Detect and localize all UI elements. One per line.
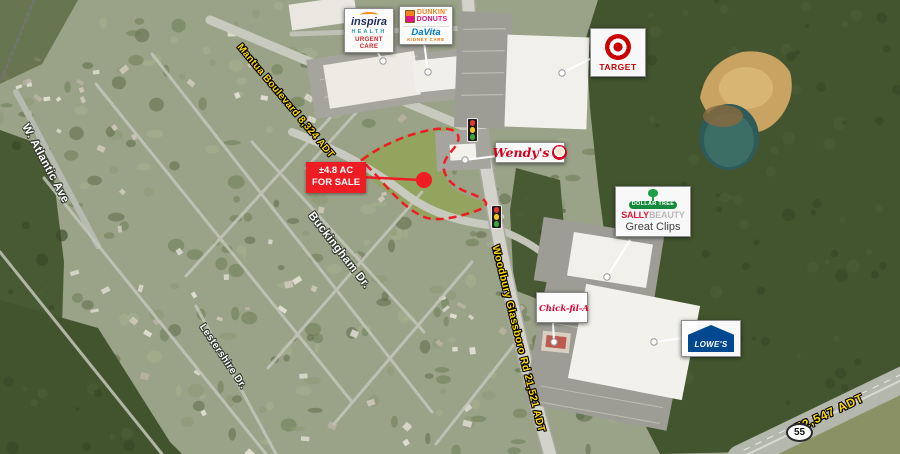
- aerial-imagery: [0, 0, 900, 454]
- dunkin-cup-icon: [405, 10, 415, 23]
- target-bullseye-icon: [605, 34, 631, 60]
- lowes-logo: LOWE'S: [694, 341, 727, 349]
- route-55-shield: 55: [786, 423, 813, 442]
- target-card: TARGET: [590, 28, 646, 77]
- dunkin-davita-card: DUNKIN' DONUTS DaVita KIDNEY CARE: [399, 6, 453, 45]
- lowes-house-shape: LOWE'S: [688, 325, 734, 352]
- lowes-card: LOWE'S: [681, 320, 741, 357]
- dunkin-logo-line1: DUNKIN': [417, 9, 448, 16]
- aerial-sale-map: Mantua Boulevard 8,324 ADT Woodbury Glas…: [0, 0, 900, 454]
- chick-fil-a-card: Chick-fil-A: [536, 292, 588, 323]
- inspira-tagline: URGENT CARE: [348, 37, 390, 50]
- dollar-tree-sally-greatclips-card: DOLLAR TREE SALLYBEAUTY Great Clips: [615, 186, 691, 237]
- for-sale-badge: ±4.8 AC FOR SALE: [306, 162, 366, 193]
- inspira-division: HEALTH: [348, 30, 390, 36]
- dunkin-logo-line2: DONUTS: [417, 16, 448, 23]
- wendys-logo: Wendy's: [493, 146, 550, 159]
- dollar-tree-icon: [646, 189, 660, 201]
- traffic-light-icon: [491, 205, 502, 229]
- traffic-light-icon: [467, 118, 478, 142]
- sally-logo-word1: SALLY: [621, 210, 649, 220]
- sale-marker-dot: [416, 172, 432, 188]
- dollar-tree-logo: DOLLAR TREE: [629, 201, 677, 209]
- sally-logo-word2: BEAUTY: [649, 210, 685, 220]
- wendys-card: Wendy's: [495, 142, 565, 163]
- route-number: 55: [794, 427, 805, 438]
- chick-fil-a-logo: Chick-fil-A: [539, 304, 589, 314]
- sale-area: ±4.8 AC: [312, 165, 360, 177]
- inspira-logo: inspira: [348, 17, 390, 29]
- sale-status: FOR SALE: [312, 177, 360, 189]
- target-logo: TARGET: [594, 63, 642, 72]
- great-clips-logo: Great Clips: [619, 222, 687, 234]
- davita-tagline: KIDNEY CARE: [403, 38, 449, 43]
- inspira-card: inspira HEALTH URGENT CARE: [344, 8, 394, 53]
